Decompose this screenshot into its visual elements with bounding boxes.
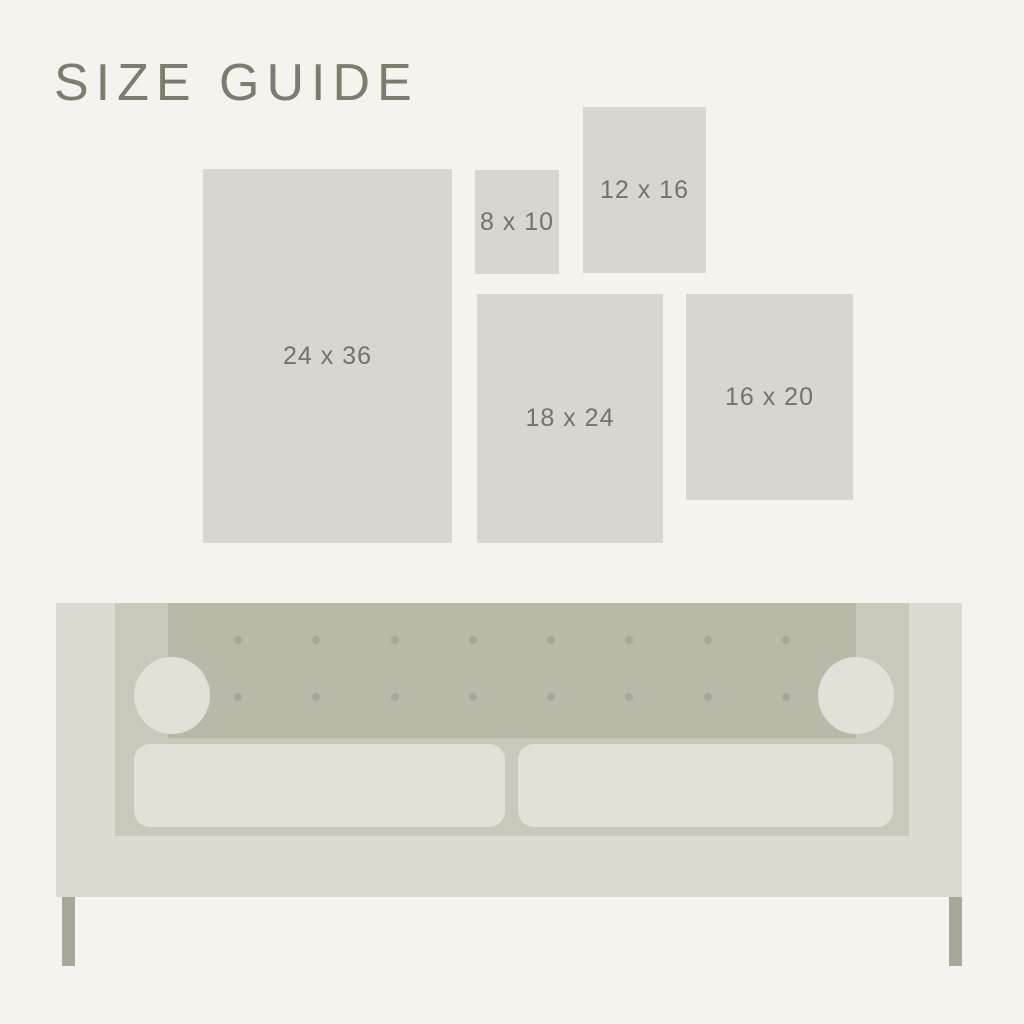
tufting-button bbox=[782, 693, 790, 701]
size-label-18x24: 18 x 24 bbox=[525, 404, 614, 433]
size-label-12x16: 12 x 16 bbox=[600, 176, 689, 205]
bolster-pillow-right bbox=[818, 657, 894, 734]
size-swatch-12x16: 12 x 16 bbox=[583, 107, 706, 273]
tufting-button bbox=[234, 693, 242, 701]
seat-cushion-right bbox=[518, 744, 893, 827]
size-label-8x10: 8 x 10 bbox=[480, 208, 554, 237]
tufting-button bbox=[391, 693, 399, 701]
tufting-button bbox=[234, 636, 242, 644]
size-swatch-24x36: 24 x 36 bbox=[203, 169, 452, 543]
tufting-button bbox=[547, 693, 555, 701]
size-label-24x36: 24 x 36 bbox=[283, 342, 372, 371]
sofa-leg-left bbox=[62, 897, 75, 966]
tufting-button bbox=[625, 693, 633, 701]
tufting-button bbox=[469, 636, 477, 644]
seat-cushion-left bbox=[134, 744, 505, 827]
tufting-button bbox=[312, 693, 320, 701]
tufting-button bbox=[469, 693, 477, 701]
tufting-button bbox=[391, 636, 399, 644]
tufting-button bbox=[704, 693, 712, 701]
size-guide-infographic: SIZE GUIDE 24 x 36 8 x 10 12 x 16 18 x 2… bbox=[0, 0, 1024, 1024]
sofa-leg-right bbox=[949, 897, 962, 966]
size-swatch-18x24: 18 x 24 bbox=[477, 294, 663, 543]
size-guide-title: SIZE GUIDE bbox=[54, 53, 419, 113]
size-swatch-8x10: 8 x 10 bbox=[475, 170, 559, 274]
tufting-button bbox=[704, 636, 712, 644]
size-swatch-16x20: 16 x 20 bbox=[686, 294, 853, 500]
tufting-button bbox=[547, 636, 555, 644]
bolster-pillow-left bbox=[134, 657, 210, 734]
tufting-buttons bbox=[234, 636, 790, 701]
tufting-button bbox=[625, 636, 633, 644]
tufting-button bbox=[782, 636, 790, 644]
size-label-16x20: 16 x 20 bbox=[725, 383, 814, 412]
tufting-button bbox=[312, 636, 320, 644]
